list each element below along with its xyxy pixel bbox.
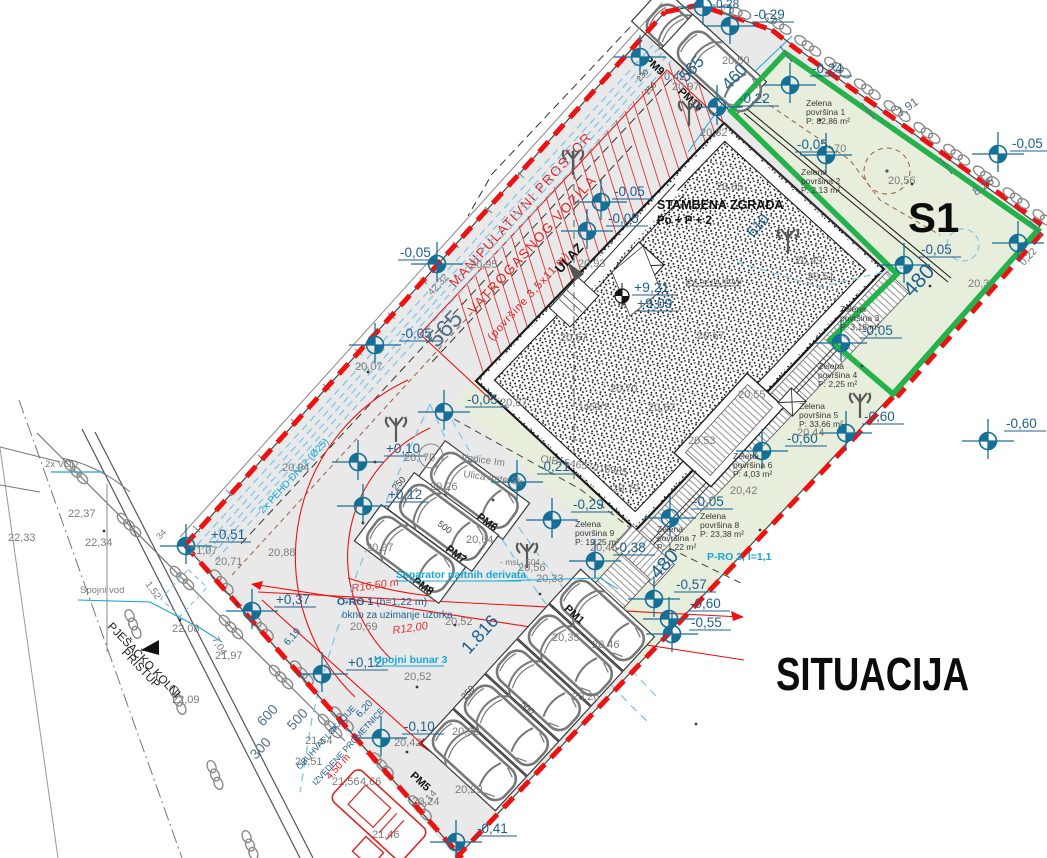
svg-text:20,95: 20,95 (470, 259, 498, 271)
svg-text:20,51: 20,51 (807, 271, 835, 283)
svg-text:22,33: 22,33 (8, 532, 36, 544)
svg-text:20,35: 20,35 (552, 632, 580, 644)
svg-text:-0,41: -0,41 (477, 821, 508, 836)
svg-text:Spojni vod: Spojni vod (80, 585, 124, 596)
svg-text:20,67: 20,67 (560, 332, 588, 344)
svg-text:-0,29: -0,29 (754, 7, 785, 22)
svg-text:70: 70 (423, 452, 435, 464)
svg-text:-0,05: -0,05 (693, 494, 724, 509)
svg-text:-0,22: -0,22 (739, 91, 770, 106)
svg-text:20,70: 20,70 (610, 383, 638, 395)
svg-text:20,71: 20,71 (215, 556, 243, 568)
svg-text:20,42: 20,42 (730, 485, 758, 497)
svg-text:2x VOD: 2x VOD (45, 459, 78, 470)
svg-text:+0,37: +0,37 (276, 592, 310, 607)
svg-text:STAMBENA ZGRADA: STAMBENA ZGRADA (657, 198, 783, 212)
svg-text:20,42: 20,42 (394, 737, 422, 749)
svg-text:21,07: 21,07 (190, 545, 218, 557)
svg-text:20,82: 20,82 (700, 127, 728, 139)
svg-text:20,29: 20,29 (455, 784, 483, 796)
svg-text:+9,09: +9,09 (637, 295, 673, 311)
svg-text:-0,05: -0,05 (797, 137, 828, 152)
svg-text:20,3: 20,3 (968, 278, 989, 290)
svg-text:20,52: 20,52 (404, 671, 432, 683)
svg-text:20,87: 20,87 (500, 397, 528, 409)
svg-text:20,85: 20,85 (716, 181, 744, 193)
svg-text:Upojni bunar 3: Upojni bunar 3 (374, 654, 448, 666)
svg-text:20,67: 20,67 (697, 330, 725, 342)
svg-text:20,79: 20,79 (612, 483, 640, 495)
svg-text:-0,29: -0,29 (573, 497, 604, 512)
svg-text:okno za uzimanje uzorka: okno za uzimanje uzorka (342, 610, 453, 621)
svg-text:-0,05: -0,05 (921, 242, 952, 257)
svg-text:-0,38: -0,38 (615, 540, 646, 555)
svg-text:20,49: 20,49 (795, 255, 823, 267)
svg-text:-0,57: -0,57 (676, 577, 707, 592)
svg-text:20,53: 20,53 (688, 435, 716, 447)
svg-text:-0,28: -0,28 (712, 0, 740, 11)
svg-text:20,67: 20,67 (648, 402, 676, 414)
svg-text:Po + P + 2: Po + P + 2 (657, 215, 712, 227)
svg-text:+9,21: +9,21 (634, 279, 670, 295)
svg-text:22,37: 22,37 (68, 508, 96, 520)
svg-text:-0,05: -0,05 (467, 392, 498, 407)
svg-text:-0,55: -0,55 (691, 615, 722, 630)
svg-text:20,26: 20,26 (430, 481, 458, 493)
svg-text:P-RO 3, l=1,1: P-RO 3, l=1,1 (707, 551, 772, 563)
svg-text:O-RO 1 (h=1,22 m): O-RO 1 (h=1,22 m) (337, 596, 427, 608)
svg-text:izv. h= na krovu: izv. h= na krovu (686, 277, 742, 286)
svg-text:21,56: 21,56 (332, 776, 360, 788)
svg-text:20,88: 20,88 (268, 547, 296, 559)
svg-text:-0,60: -0,60 (864, 409, 895, 424)
svg-text:20,46: 20,46 (592, 639, 620, 651)
svg-text:20,97: 20,97 (366, 542, 394, 554)
svg-text:70: 70 (834, 143, 846, 155)
svg-text:-0,05: -0,05 (400, 245, 431, 260)
svg-text:+0,51: +0,51 (211, 527, 245, 542)
svg-text:21,46: 21,46 (372, 829, 400, 841)
svg-text:0,42: 0,42 (664, 71, 685, 83)
svg-text:-0,05: -0,05 (608, 211, 639, 226)
svg-text:S1: S1 (908, 194, 959, 241)
svg-text:-0,60: -0,60 (690, 596, 721, 611)
svg-text:20,38: 20,38 (452, 726, 480, 738)
svg-text:22,34: 22,34 (85, 537, 113, 549)
svg-text:20,69: 20,69 (350, 621, 378, 633)
svg-text:-0,24: -0,24 (812, 61, 843, 76)
svg-text:+0,12: +0,12 (388, 487, 422, 502)
svg-text:SITUACIJA: SITUACIJA (776, 648, 969, 700)
svg-text:20,: 20, (404, 452, 419, 464)
svg-text:Separator naftnih derivata: Separator naftnih derivata (396, 569, 526, 581)
svg-text:- msl - 504: - msl - 504 (500, 557, 540, 567)
svg-text:20,55: 20,55 (738, 389, 766, 401)
svg-text:-0,10: -0,10 (404, 719, 435, 734)
svg-text:20,94: 20,94 (282, 462, 310, 474)
svg-text:20,64: 20,64 (466, 534, 494, 546)
svg-text:-0,60: -0,60 (1006, 416, 1037, 431)
svg-text:20,26: 20,26 (572, 691, 600, 703)
svg-text:22,08: 22,08 (172, 623, 200, 635)
svg-text:20,93: 20,93 (578, 258, 606, 270)
svg-text:-0,05: -0,05 (614, 184, 645, 199)
svg-text:1459/1: 1459/1 (578, 402, 609, 413)
svg-text:-0,05: -0,05 (1012, 136, 1043, 151)
